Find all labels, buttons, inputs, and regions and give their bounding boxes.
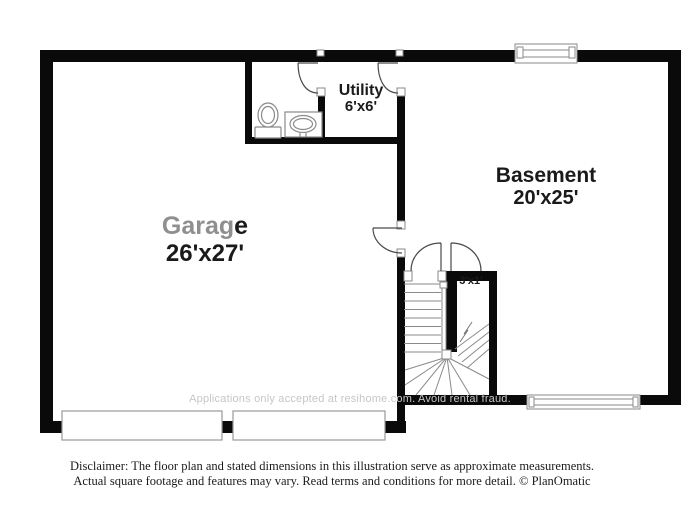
toilet-icon bbox=[255, 103, 281, 138]
window-top-icon bbox=[515, 44, 577, 63]
stairs-icon bbox=[404, 284, 489, 395]
wall-right bbox=[668, 50, 681, 405]
wall-bathroom-west bbox=[245, 62, 252, 144]
closet-room-dims: 3'x1' bbox=[445, 275, 497, 287]
closet-room-label: 3'x1' bbox=[445, 275, 497, 287]
garage-room-label: Garage 26'x27' bbox=[110, 213, 300, 267]
wall-stair-divider bbox=[446, 281, 457, 352]
wall-left bbox=[40, 50, 53, 433]
garage-door-icon bbox=[233, 411, 385, 440]
wall-top bbox=[40, 50, 681, 62]
disclaimer-line-2: Actual square footage and features may v… bbox=[0, 474, 664, 489]
basement-room-name: Basement bbox=[496, 164, 596, 187]
double-door-right-swing-icon bbox=[451, 243, 481, 271]
garage-room-dims: 26'x27' bbox=[110, 240, 300, 267]
stair-return-flight bbox=[455, 324, 489, 368]
stair-treads bbox=[404, 284, 441, 352]
windows bbox=[515, 44, 640, 409]
utility-room-label: Utility 6'x6' bbox=[312, 83, 410, 115]
basement-room-label: Basement 20'x25' bbox=[466, 165, 626, 209]
basement-room-dims: 20'x25' bbox=[466, 187, 626, 209]
garage-room-name: Garage bbox=[162, 212, 248, 240]
floor-plan-drawing bbox=[0, 0, 700, 509]
stair-handrail bbox=[442, 287, 446, 351]
garage-door-icon bbox=[62, 411, 222, 440]
utility-room-dims: 6'x6' bbox=[312, 99, 410, 115]
wall-closet-east bbox=[489, 271, 497, 395]
double-door-left-swing-icon bbox=[411, 243, 441, 271]
stair-break-line bbox=[460, 322, 472, 342]
disclaimer: Disclaimer: The floor plan and stated di… bbox=[0, 459, 664, 489]
utility-room-name: Utility bbox=[339, 82, 383, 99]
watermark-text: Applications only accepted at resihome.c… bbox=[148, 392, 552, 406]
sink-icon bbox=[285, 112, 322, 137]
floor-plan-page: Garage 26'x27' Basement 20'x25' Utility … bbox=[0, 0, 700, 509]
disclaimer-line-1: Disclaimer: The floor plan and stated di… bbox=[0, 459, 664, 474]
stair-winder-treads bbox=[405, 357, 489, 395]
